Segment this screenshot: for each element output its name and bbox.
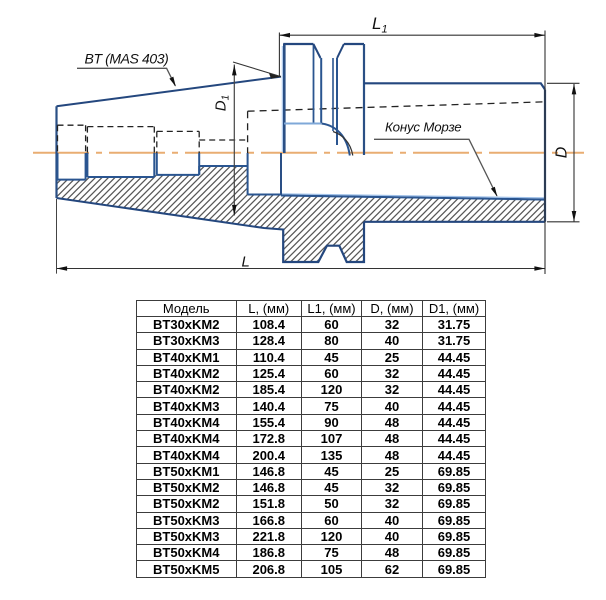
svg-text:D1: D1 bbox=[213, 95, 232, 111]
svg-text:L1: L1 bbox=[372, 14, 388, 36]
svg-text:Конус Морзе: Конус Морзе bbox=[385, 120, 461, 135]
svg-text:BT (MAS 403): BT (MAS 403) bbox=[85, 51, 169, 67]
svg-text:L: L bbox=[242, 254, 250, 271]
svg-text:D: D bbox=[554, 146, 571, 158]
